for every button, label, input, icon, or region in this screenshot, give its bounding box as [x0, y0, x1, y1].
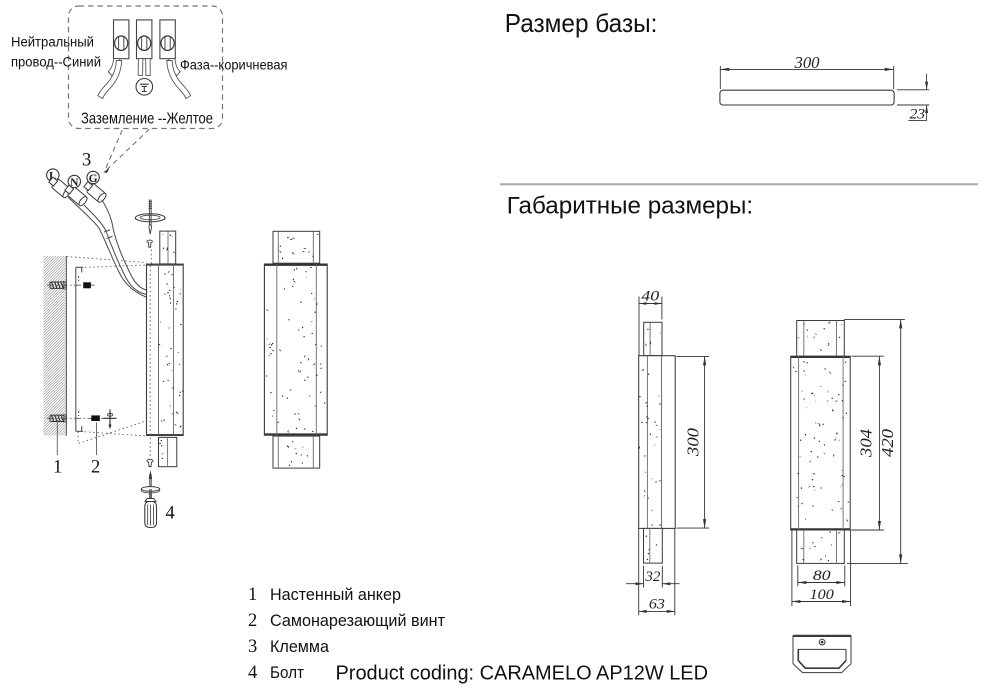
- svg-text:Габаритные размеры:: Габаритные размеры:: [507, 193, 753, 220]
- svg-text:300: 300: [794, 53, 820, 72]
- svg-text:Клемма: Клемма: [270, 637, 330, 656]
- svg-text:Самонарезающий винт: Самонарезающий винт: [270, 611, 445, 630]
- svg-text:304: 304: [857, 428, 876, 458]
- svg-text:провод--Синий: провод--Синий: [11, 54, 101, 69]
- svg-text:63: 63: [649, 597, 665, 613]
- svg-text:2: 2: [248, 611, 257, 631]
- svg-text:1: 1: [248, 585, 257, 605]
- svg-text:Болт: Болт: [270, 663, 304, 682]
- svg-text:1: 1: [53, 458, 62, 478]
- svg-text:Размер базы:: Размер базы:: [505, 8, 658, 38]
- svg-text:40: 40: [641, 289, 660, 305]
- svg-text:Заземление --Желтое: Заземление --Желтое: [81, 110, 213, 127]
- svg-text:Настенный анкер: Настенный анкер: [270, 585, 401, 604]
- svg-text:Фаза--коричневая: Фаза--коричневая: [180, 57, 288, 72]
- svg-text:4: 4: [166, 504, 175, 524]
- svg-text:2: 2: [91, 458, 100, 478]
- svg-text:3: 3: [82, 151, 91, 171]
- svg-text:420: 420: [878, 428, 897, 457]
- svg-text:Нейтральный: Нейтральный: [11, 35, 94, 50]
- svg-text:100: 100: [810, 587, 835, 603]
- svg-text:Product coding: CARAMELO AP12W: Product coding: CARAMELO AP12W LED: [336, 663, 709, 685]
- svg-text:32: 32: [644, 569, 660, 585]
- svg-text:80: 80: [813, 568, 832, 584]
- svg-text:300: 300: [684, 427, 703, 457]
- svg-text:3: 3: [248, 637, 257, 657]
- svg-text:23: 23: [910, 107, 926, 123]
- svg-text:4: 4: [248, 663, 257, 683]
